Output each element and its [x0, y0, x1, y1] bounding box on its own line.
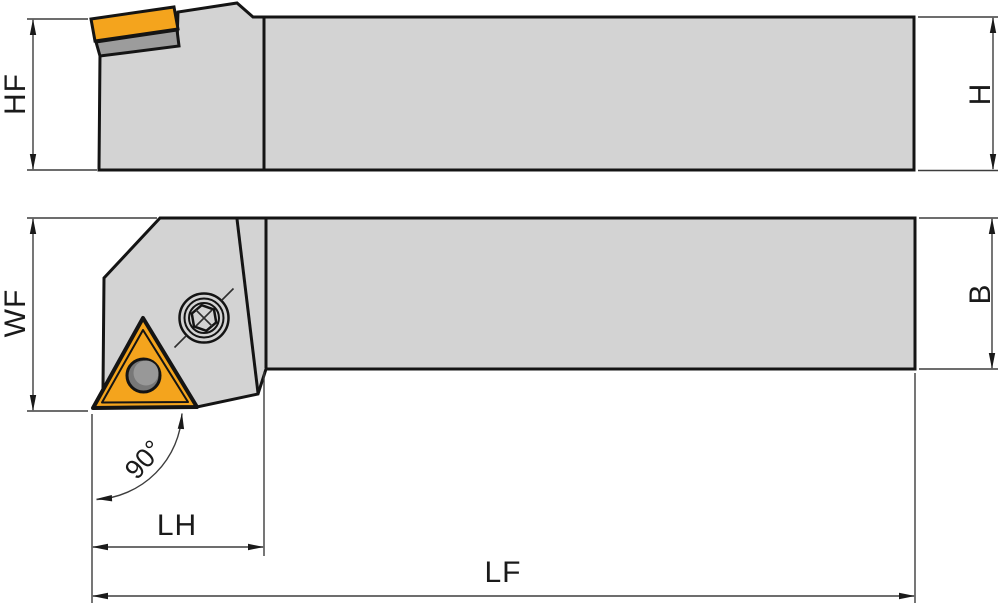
dim-b: B [919, 218, 998, 369]
arrowhead [30, 154, 36, 170]
arrowhead [989, 353, 995, 369]
dim-label-h: H [964, 83, 997, 106]
arrowhead [899, 593, 915, 599]
arrowhead [248, 544, 264, 550]
technical-drawing: HF H [0, 0, 1000, 607]
drawing-canvas: HF H [0, 0, 1000, 607]
arrowhead [990, 17, 996, 33]
arrowhead [990, 154, 996, 170]
arrowhead [989, 218, 995, 234]
dim-hf: HF [0, 19, 97, 170]
arrowhead [30, 395, 36, 411]
arrowhead [92, 593, 108, 599]
angle-label: 90° [119, 434, 169, 484]
dim-lf: LF [92, 373, 915, 603]
insert-hole-highlight [134, 361, 159, 386]
dim-label-lf: LF [484, 556, 521, 589]
arrowhead [96, 495, 112, 502]
side-view [91, 3, 914, 170]
arrowhead [178, 413, 186, 429]
plan-view [93, 218, 915, 408]
arrowhead [30, 19, 36, 35]
dim-h: H [918, 17, 998, 171]
dim-label-hf: HF [0, 73, 32, 115]
dim-label-b: B [964, 283, 997, 304]
angle-annotation: 90° [96, 413, 185, 502]
tool-body-plan [103, 218, 915, 407]
arrowhead [30, 218, 36, 234]
dim-label-lh: LH [157, 509, 197, 542]
dim-label-wf: WF [0, 289, 32, 338]
tool-body-side [99, 3, 914, 170]
arrowhead [92, 544, 108, 550]
